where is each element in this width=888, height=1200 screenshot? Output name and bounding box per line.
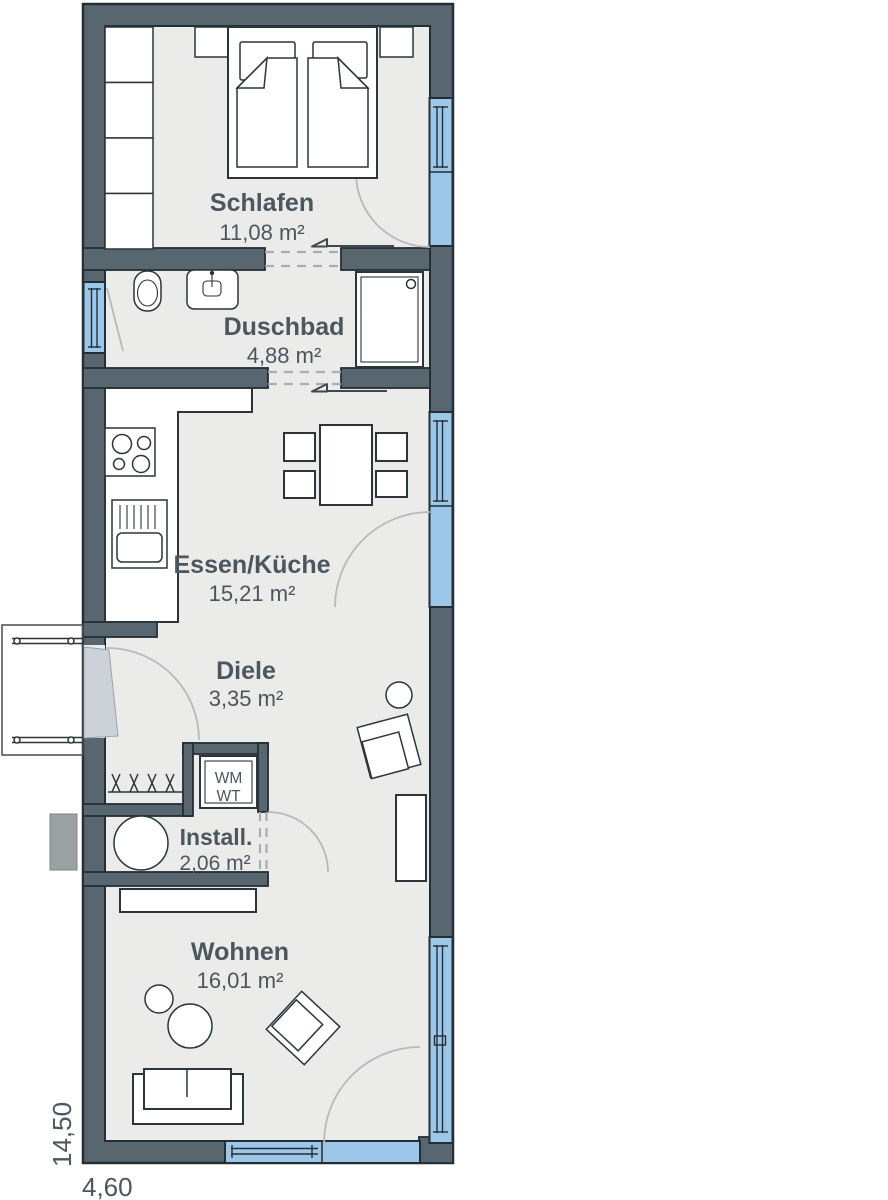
washbasin: [187, 270, 238, 309]
window-schlafen: [430, 98, 453, 246]
room-name-diele: Diele: [216, 657, 276, 685]
room-area-wohnen: 16,01 m²: [197, 968, 284, 993]
chair: [376, 471, 407, 497]
wall-closet-right: [258, 743, 268, 812]
sofa: [133, 1069, 243, 1124]
wall-duschbad-essen-right: [341, 368, 430, 388]
nightstand-right: [380, 27, 413, 57]
dimension-height: 14,50: [47, 1102, 77, 1167]
nightstand-left: [195, 27, 228, 57]
chair: [284, 471, 315, 498]
room-area-essen-kueche: 15,21 m²: [209, 581, 296, 606]
floor-plan-page: WM WT: [0, 0, 888, 1200]
boiler: [114, 816, 168, 870]
window-wohnen-bottom: [225, 1141, 420, 1163]
dining-table: [320, 425, 372, 505]
window-wohnen-side: [430, 937, 453, 1143]
double-bed: [228, 27, 377, 178]
window-essen: [430, 412, 453, 607]
room-name-wohnen: Wohnen: [191, 938, 289, 966]
chair: [376, 433, 407, 461]
room-area-install: 2,06 m²: [179, 852, 250, 875]
porch-railing: [12, 638, 83, 743]
wall-closet-left: [183, 743, 193, 816]
wall-diele-install: [83, 804, 192, 816]
wall-closet-top: [183, 743, 268, 754]
washer-dryer-unit: WM WT: [200, 756, 257, 808]
wardrobe: [105, 27, 153, 249]
chair: [284, 433, 315, 461]
room-name-duschbad: Duschbad: [224, 313, 345, 341]
side-table-small: [145, 985, 173, 1013]
room-name-install: Install.: [180, 824, 253, 850]
exterior-utility-block: [50, 814, 77, 870]
exterior-elements: [2, 625, 83, 870]
side-table-large: [168, 1004, 212, 1048]
tv-board: [396, 795, 426, 881]
room-area-schlafen: 11,08 m²: [219, 220, 304, 245]
wall-schlafen-duschbad-right: [341, 248, 430, 270]
sideboard: [120, 889, 256, 912]
room-name-schlafen: Schlafen: [210, 189, 314, 217]
cooktop: [105, 428, 155, 476]
room-area-diele: 3,35 m²: [209, 686, 284, 711]
wall-kitchen-stub: [83, 622, 157, 637]
kitchen-sink: [112, 500, 167, 568]
shower: [356, 272, 423, 367]
dryer-label: WT: [216, 788, 241, 805]
room-name-essen-kueche: Essen/Küche: [173, 551, 330, 579]
wall-schlafen-duschbad-left: [83, 248, 265, 270]
dimension-width: 4,60: [82, 1172, 133, 1200]
wall-duschbad-essen-left: [83, 368, 268, 388]
stool: [386, 682, 412, 708]
room-area-duschbad: 4,88 m²: [247, 343, 322, 368]
toilet: [134, 271, 161, 311]
floor-plan-drawing: WM WT: [0, 0, 888, 1200]
washer-label: WM: [215, 770, 243, 787]
